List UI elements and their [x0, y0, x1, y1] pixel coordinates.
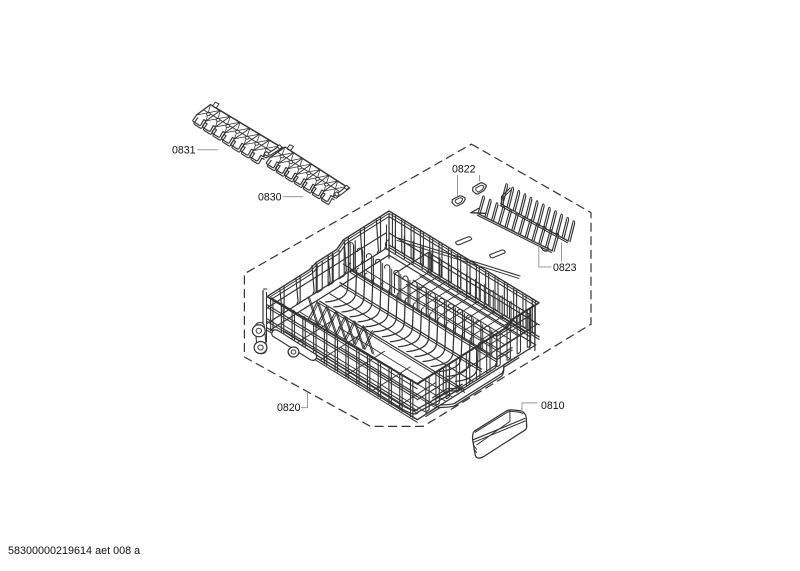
svg-text:0820: 0820	[277, 402, 301, 414]
svg-text:0830: 0830	[258, 192, 282, 204]
svg-text:0810: 0810	[541, 400, 565, 412]
svg-text:0823: 0823	[553, 262, 577, 274]
svg-text:0822: 0822	[452, 163, 476, 175]
svg-text:58300000219614 aet 008 a: 58300000219614 aet 008 a	[8, 545, 140, 557]
svg-text:0831: 0831	[172, 145, 196, 157]
